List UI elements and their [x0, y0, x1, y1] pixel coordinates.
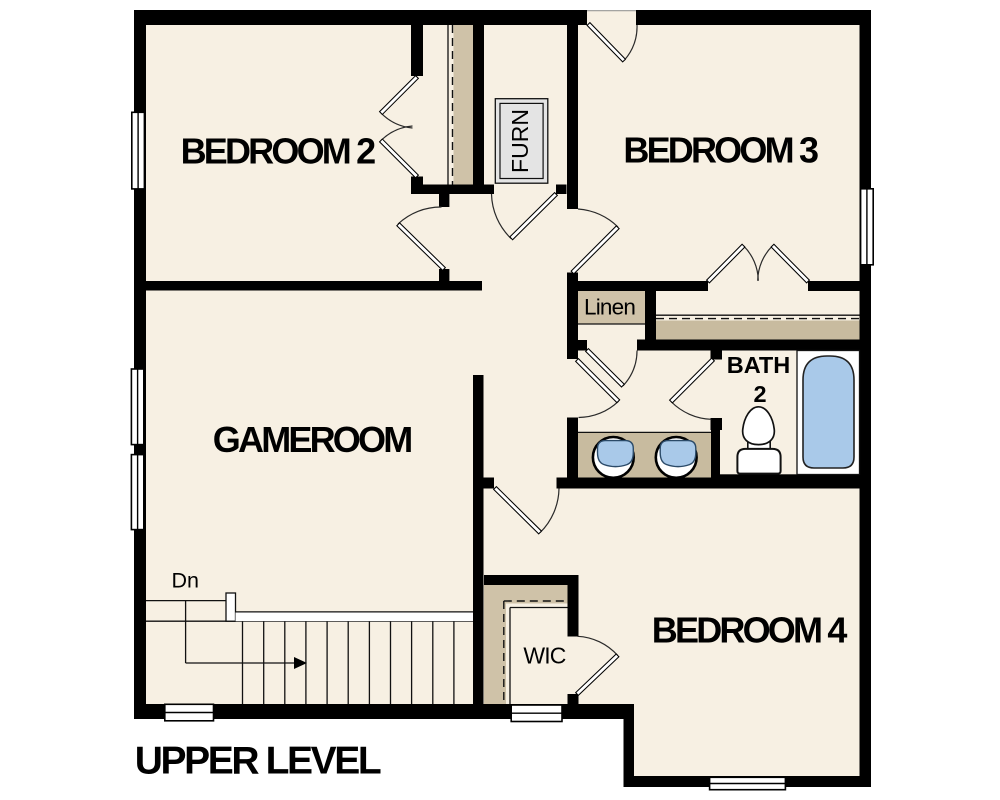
svg-text:BATH: BATH	[727, 352, 791, 378]
svg-text:FURN: FURN	[507, 109, 533, 173]
svg-text:2: 2	[753, 381, 766, 407]
svg-text:BEDROOM 2: BEDROOM 2	[181, 130, 376, 171]
svg-text:GAMEROOM: GAMEROOM	[213, 419, 411, 460]
svg-text:Linen: Linen	[584, 295, 635, 320]
svg-text:BEDROOM 3: BEDROOM 3	[623, 129, 818, 170]
svg-text:BEDROOM 4: BEDROOM 4	[652, 610, 848, 651]
svg-text:UPPER LEVEL: UPPER LEVEL	[135, 740, 381, 783]
svg-text:WIC: WIC	[523, 643, 565, 669]
svg-text:Dn: Dn	[172, 569, 199, 593]
